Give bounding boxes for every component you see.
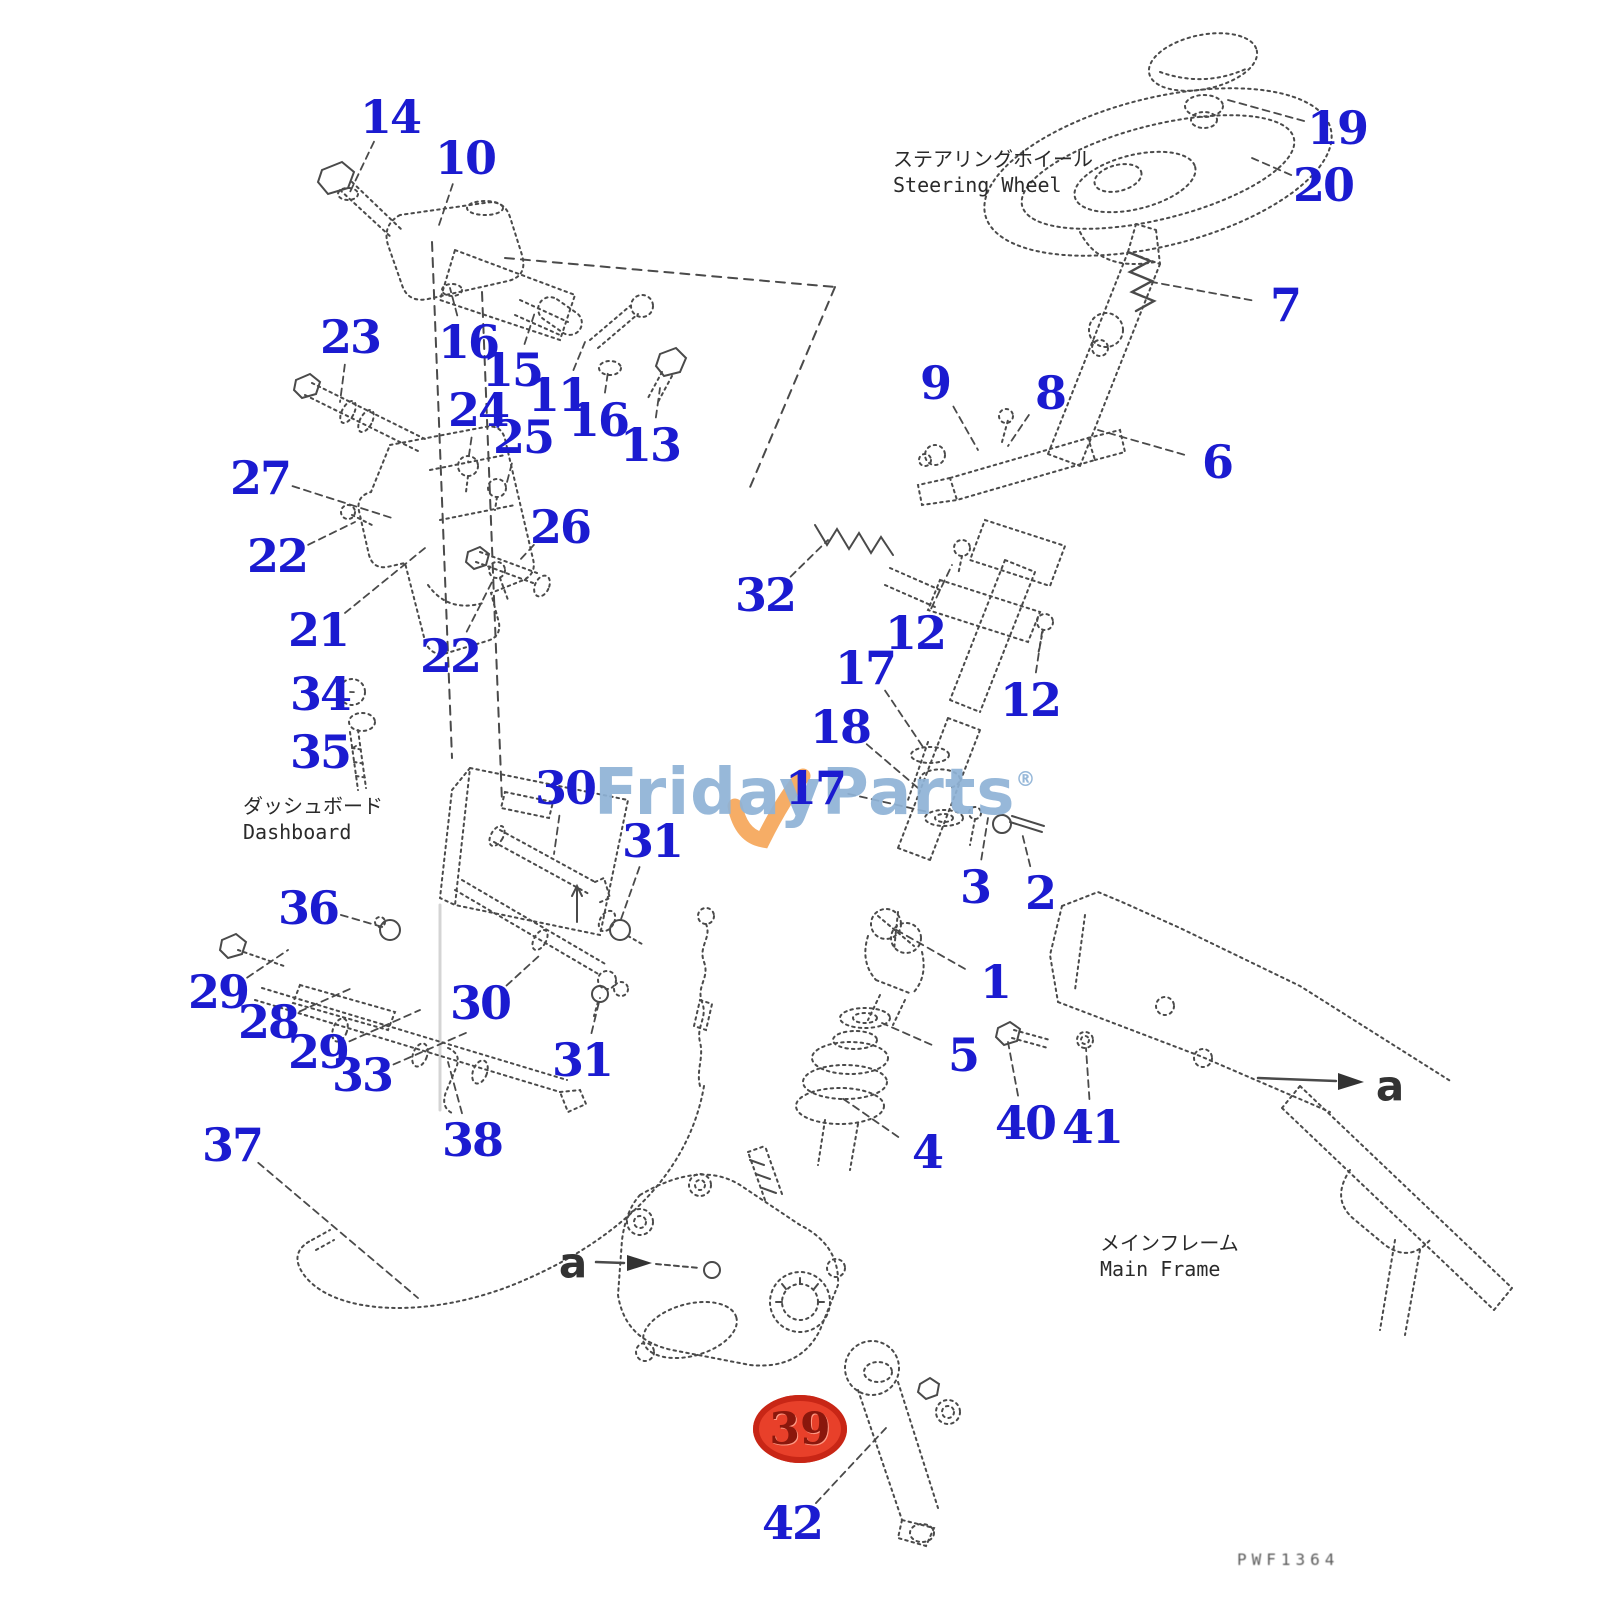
callout-41: 41 [1062, 1100, 1122, 1154]
callout-4: 4 [912, 1125, 942, 1179]
highlighted-callout: 39 [753, 1395, 847, 1463]
drawing-code: PWF1364 [1237, 1550, 1339, 1569]
steering-gear-box-drawing [618, 1146, 845, 1368]
callout-33: 33 [332, 1048, 392, 1102]
callout-42: 42 [762, 1496, 822, 1550]
callout-17: 17 [785, 761, 845, 815]
callout-20: 20 [1293, 158, 1353, 212]
callout-36: 36 [278, 881, 338, 935]
callout-17: 17 [835, 641, 895, 695]
callout-27: 27 [230, 451, 290, 505]
callout-30: 30 [450, 976, 510, 1030]
callout-13: 13 [620, 418, 680, 472]
callout-34: 34 [290, 667, 350, 721]
section-arrows [596, 1073, 1364, 1271]
callout-35: 35 [290, 725, 350, 779]
callout-25: 25 [493, 410, 553, 464]
callout-7: 7 [1270, 278, 1300, 332]
area-label-jp: ダッシュボード [243, 793, 383, 819]
callout-18: 18 [810, 700, 870, 754]
callout-38: 38 [442, 1113, 502, 1167]
callout-40: 40 [995, 1096, 1055, 1150]
area-label-en: Dashboard [243, 819, 383, 845]
column-bracket-drawing [339, 427, 553, 791]
callout-1: 1 [980, 955, 1010, 1009]
callout-37: 37 [202, 1118, 262, 1172]
callout-30: 30 [535, 761, 595, 815]
parts-diagram-page: FridayParts® ステアリングホイールSteering Wheelダッシ… [0, 0, 1600, 1600]
callout-8: 8 [1035, 366, 1065, 420]
callout-10: 10 [435, 131, 495, 185]
pitman-arm-drawing [845, 1341, 960, 1546]
section-marker-a: a [1376, 1062, 1404, 1111]
area-label-steering-wheel: ステアリングホイールSteering Wheel [893, 146, 1093, 198]
highlighted-callout-number: 39 [769, 1404, 830, 1455]
callout-22: 22 [247, 529, 307, 583]
callout-22: 22 [420, 629, 480, 683]
area-label-en: Main Frame [1100, 1256, 1239, 1282]
registered-mark: ® [1016, 767, 1037, 791]
callout-31: 31 [622, 814, 682, 868]
callout-23: 23 [320, 310, 380, 364]
callout-19: 19 [1307, 101, 1367, 155]
area-label-en: Steering Wheel [893, 172, 1093, 198]
callout-12: 12 [1000, 673, 1060, 727]
callout-26: 26 [530, 500, 590, 554]
callout-9: 9 [920, 356, 950, 410]
section-marker-a: a [559, 1239, 587, 1288]
callout-31: 31 [552, 1033, 612, 1087]
callout-32: 32 [735, 568, 795, 622]
callout-3: 3 [960, 860, 990, 914]
callout-14: 14 [360, 90, 420, 144]
area-label-dashboard: ダッシュボードDashboard [243, 793, 383, 845]
area-label-main-frame: メインフレームMain Frame [1100, 1230, 1239, 1282]
area-label-jp: ステアリングホイール [893, 146, 1093, 172]
callout-5: 5 [948, 1028, 978, 1082]
area-label-jp: メインフレーム [1100, 1230, 1239, 1256]
callout-21: 21 [288, 603, 348, 657]
callout-6: 6 [1202, 435, 1232, 489]
callout-2: 2 [1025, 866, 1055, 920]
